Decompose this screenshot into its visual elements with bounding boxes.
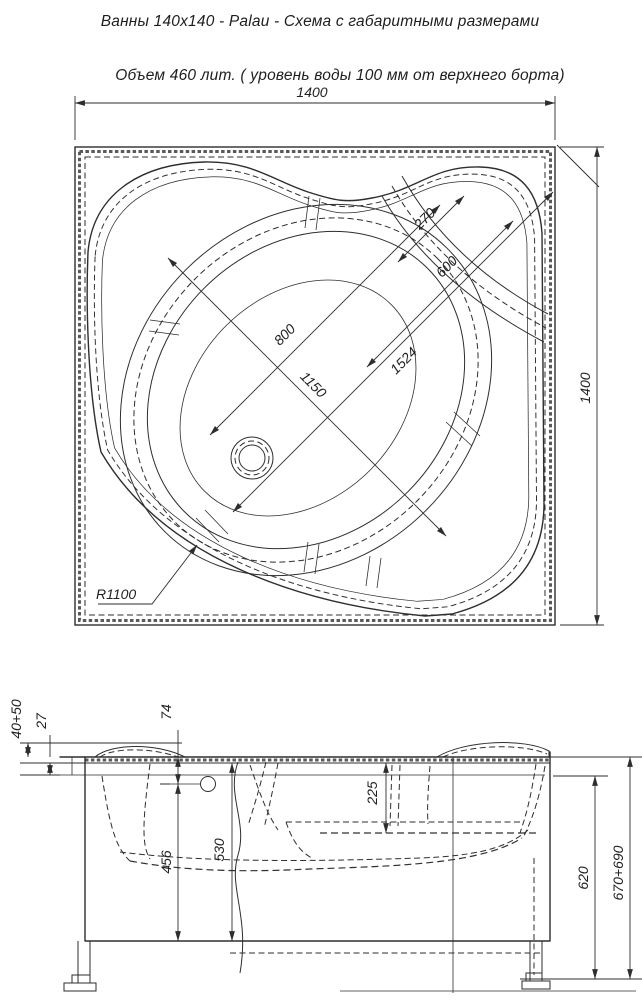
legs bbox=[64, 941, 550, 991]
dim-530: 530 bbox=[211, 838, 227, 862]
dim-rim-drop: 40+50 bbox=[8, 699, 24, 739]
dim-diag-1524: 1524 bbox=[387, 344, 420, 377]
dim-620: 620 bbox=[575, 866, 591, 890]
dim-bowl-800: 800 bbox=[271, 320, 299, 348]
page-title: Ванны 140x140 - Palau - Схема с габаритн… bbox=[101, 13, 540, 30]
side-dims-left: 40+50 27 74 456 530 225 bbox=[8, 699, 386, 941]
radius-callout: R1100 bbox=[96, 586, 136, 602]
headrest-left-hidden bbox=[100, 750, 178, 757]
bowl-floor-edge bbox=[133, 233, 464, 564]
dim-456: 456 bbox=[158, 850, 174, 874]
overflow-hole bbox=[201, 777, 216, 792]
overflow bbox=[170, 777, 216, 792]
bath-schematic-svg: Ванны 140x140 - Palau - Схема с габаритн… bbox=[0, 0, 642, 1000]
plan-view: 1400 1400 270 600 1524 800 1150 R1100 bbox=[44, 84, 604, 652]
drain bbox=[231, 437, 273, 479]
drain-mid bbox=[235, 441, 269, 475]
side-view: 40+50 27 74 456 530 225 620 670+690 bbox=[8, 699, 642, 993]
bowl bbox=[44, 128, 567, 651]
seat-contours bbox=[382, 176, 548, 342]
dim-overflow: 74 bbox=[158, 704, 174, 720]
bowl-inner-edge bbox=[83, 167, 530, 614]
seat-edge-2 bbox=[382, 196, 544, 342]
drain-inner bbox=[239, 445, 265, 471]
dim-seat-600: 600 bbox=[433, 252, 461, 280]
seat-edge-1 bbox=[402, 176, 548, 314]
headrest-left bbox=[95, 746, 185, 757]
side-dims-right: 620 670+690 bbox=[520, 757, 642, 979]
diagonal-dims: 270 600 1524 800 1150 bbox=[168, 192, 553, 536]
dim-width-top: 1400 bbox=[296, 84, 327, 100]
dim-seat-225: 225 bbox=[364, 781, 380, 806]
dim-seat-270: 270 bbox=[410, 204, 439, 233]
drain-outer bbox=[231, 437, 273, 479]
page-subtitle: Объем 460 лит. ( уровень воды 100 мм от … bbox=[115, 67, 564, 84]
shell-outline bbox=[85, 752, 550, 941]
dim-height-right: 1400 bbox=[577, 372, 593, 403]
bowl-rim-edge bbox=[44, 128, 567, 651]
leg-left-foot bbox=[64, 983, 96, 991]
dim-height-right-group: 1400 bbox=[557, 145, 604, 625]
dim-lip: 27 bbox=[33, 712, 49, 730]
dim-width-top-group: 1400 bbox=[75, 84, 555, 140]
leg-left-nut bbox=[72, 975, 90, 983]
radius-callout-group: R1100 bbox=[96, 545, 197, 604]
drawing-sheet: Ванны 140x140 - Palau - Схема с габаритн… bbox=[0, 0, 642, 1000]
dim-total-height: 670+690 bbox=[610, 845, 626, 900]
dim-bowl-1150: 1150 bbox=[297, 368, 330, 401]
leg-right-foot bbox=[522, 981, 550, 989]
